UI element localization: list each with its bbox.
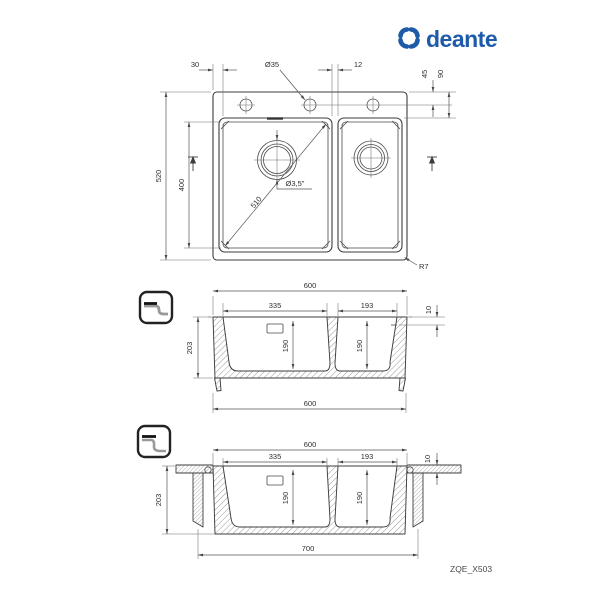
dim-bowl-depth: 400 <box>177 179 186 192</box>
dim-second-bowl-depth: 190 <box>355 340 364 353</box>
dim-corner-radius: R7 <box>419 262 429 271</box>
dim-faucet-hole: Ø35 <box>265 60 279 69</box>
dim-main-bowl-depth: 190 <box>281 340 290 353</box>
dim-edge-to-holes: 45 <box>420 70 429 78</box>
dim-edge-to-bowl: 90 <box>436 70 445 78</box>
mount-type-flush-icon <box>138 426 170 457</box>
mounted-view: 600 335 193 10 203 190 190 700 <box>138 426 461 559</box>
sink-section-body <box>213 317 407 378</box>
dim-main-bowl-width-2: 335 <box>269 452 282 461</box>
dim-overall-width: 600 <box>304 281 317 290</box>
dim-hole-offset: 12 <box>354 60 362 69</box>
brand-name: deante <box>426 26 497 52</box>
mount-type-inset-icon <box>140 292 172 323</box>
countertop-right <box>407 465 461 473</box>
cutout-edge-left <box>193 473 203 527</box>
dim-overall-height-2: 203 <box>154 494 163 507</box>
dim-second-bowl-width: 193 <box>361 301 374 310</box>
countertop-left <box>176 465 213 473</box>
overflow-opening-2 <box>267 476 283 485</box>
dim-second-bowl-depth-2: 190 <box>355 492 364 505</box>
section-view: 600 335 193 10 203 190 190 600 <box>140 281 445 413</box>
dim-rim-left: 30 <box>191 60 199 69</box>
apron-left <box>215 378 222 391</box>
dim-drain-diameter: Ø3,5" <box>286 179 305 188</box>
sink-mounted-body <box>213 466 407 534</box>
plan-view: 520 400 30 Ø35 12 45 90 <box>154 60 456 271</box>
level-symbol-right <box>427 157 437 171</box>
dim-base-width: 600 <box>304 399 317 408</box>
dim-main-bowl-depth-2: 190 <box>281 492 290 505</box>
second-bowl <box>338 118 402 252</box>
dim-overall-height: 203 <box>185 342 194 355</box>
main-drain <box>254 137 300 183</box>
brand-mark-icon <box>401 30 418 47</box>
cutout-edge-right <box>413 473 423 527</box>
second-drain <box>351 138 391 178</box>
apron-right <box>399 378 406 391</box>
dim-bowl-diagonal: 510 <box>249 195 264 210</box>
dim-overall-depth: 520 <box>154 170 163 183</box>
brand-logo: deante <box>401 26 498 52</box>
level-symbol-left <box>188 157 198 171</box>
product-code: ZQE_X503 <box>450 564 492 574</box>
dim-cutout-width: 700 <box>302 544 315 553</box>
dim-main-bowl-width: 335 <box>269 301 282 310</box>
sink-technical-drawing: deante <box>0 0 600 600</box>
dim-second-bowl-width-2: 193 <box>361 452 374 461</box>
faucet-holes <box>237 96 452 114</box>
technical-drawing-page: deante <box>0 0 600 600</box>
dim-overall-width-2: 600 <box>304 440 317 449</box>
dim-countertop-thickness: 10 <box>423 455 432 463</box>
dim-rim-height: 10 <box>424 306 433 314</box>
overflow-opening <box>267 324 283 333</box>
sink-outline <box>213 92 407 260</box>
